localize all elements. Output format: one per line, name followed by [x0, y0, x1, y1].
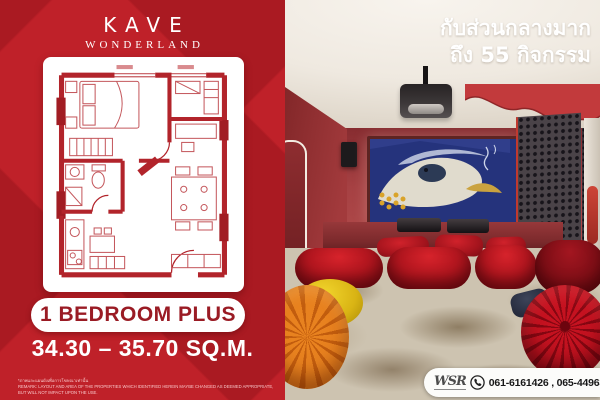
ad-poster: KAVE WONDERLAND: [0, 0, 600, 400]
contact-bar: WSR 061-6161426 , 065-4496399: [424, 368, 600, 397]
koi-artwork: [370, 139, 510, 216]
disclaimer-english: REMARK: LAYOUT AND AREA OF THE PROPERTIE…: [18, 384, 276, 396]
headline-line2: ถึง 55 กิจกรรม: [440, 42, 591, 69]
phone-numbers: 061-6161426 , 065-4496399: [489, 377, 600, 389]
soundbar-right: [447, 219, 489, 233]
floor-plan-drawing: [49, 63, 238, 286]
floor-plan-card: [43, 57, 244, 292]
disclaimer: *ภาพและแผนผังเพื่อการโฆษณาเท่านั้น REMAR…: [18, 378, 276, 396]
velvet-bench: [387, 247, 471, 289]
unit-type-label: 1 BEDROOM PLUS: [40, 303, 236, 327]
unit-area-label: 34.30 – 35.70 SQ.M.: [0, 335, 285, 362]
headline-line1: กับส่วนกลางมาก: [440, 15, 591, 42]
unit-type-badge: 1 BEDROOM PLUS: [31, 298, 245, 332]
phone-icon: [470, 375, 485, 390]
brand-name: KAVE: [0, 13, 285, 37]
brand-subname: WONDERLAND: [0, 39, 285, 51]
projector-mount: [423, 66, 428, 86]
projector-lens: [408, 104, 444, 114]
left-red-panel: KAVE WONDERLAND: [0, 0, 285, 400]
pouf-button: [560, 321, 570, 331]
soundbar-left: [397, 218, 441, 232]
wsr-logo: WSR: [434, 375, 466, 390]
red-sculpture: [587, 186, 598, 244]
disclaimer-thai: *ภาพและแผนผังเพื่อการโฆษณาเท่านั้น: [18, 378, 276, 384]
projector: [400, 84, 452, 118]
projection-screen: [367, 136, 519, 225]
velvet-bench: [475, 245, 537, 289]
speaker-left: [341, 142, 357, 167]
red-round-pouf: [521, 285, 600, 379]
brand-logo: KAVE WONDERLAND: [0, 13, 285, 51]
headline-thai: กับส่วนกลางมาก ถึง 55 กิจกรรม: [440, 15, 591, 69]
